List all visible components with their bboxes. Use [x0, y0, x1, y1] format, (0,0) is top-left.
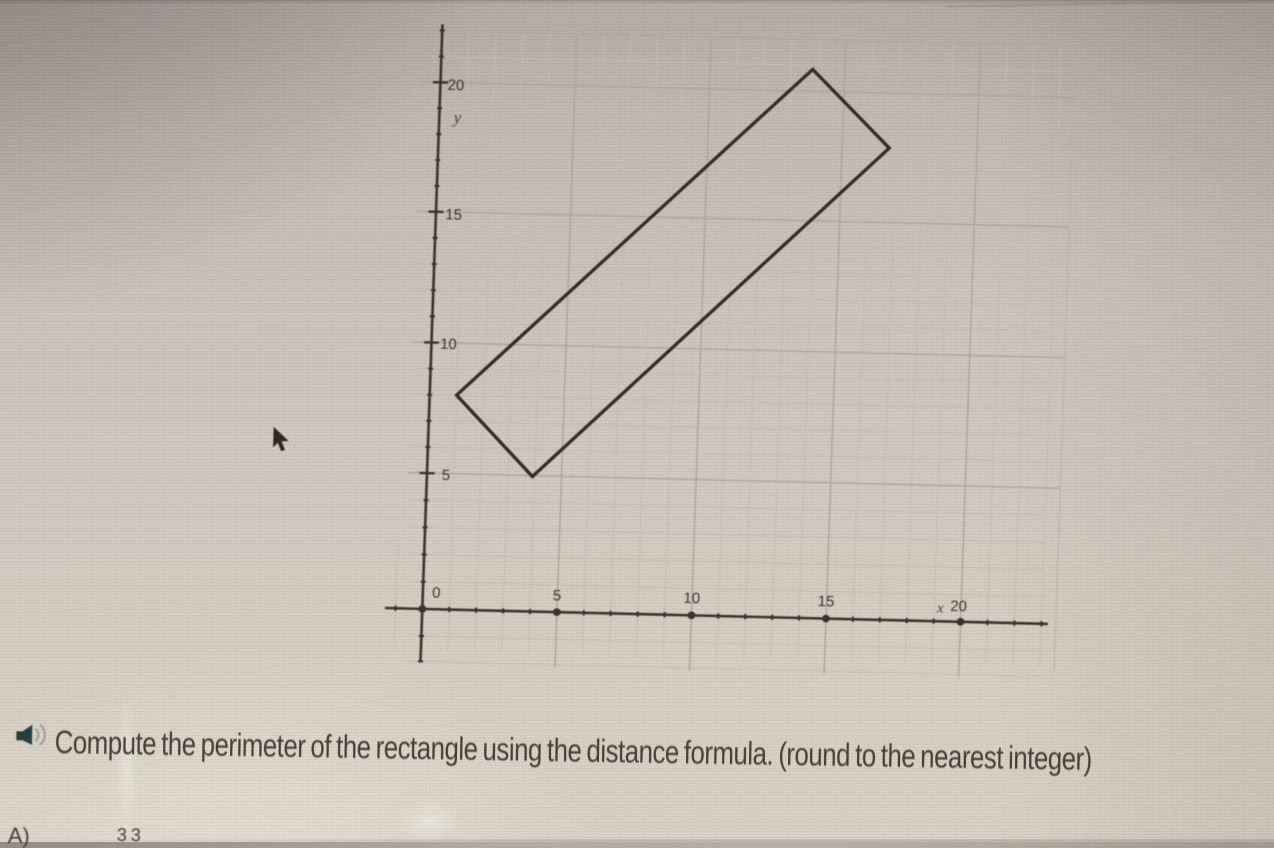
svg-text:x: x — [936, 601, 945, 617]
svg-text:15: 15 — [817, 593, 834, 610]
svg-text:0: 0 — [432, 585, 441, 602]
svg-text:10: 10 — [683, 590, 700, 607]
svg-text:y: y — [451, 108, 462, 127]
svg-text:20: 20 — [950, 598, 967, 615]
svg-text:5: 5 — [442, 467, 451, 484]
svg-text:15: 15 — [445, 206, 462, 223]
svg-text:5: 5 — [553, 587, 562, 604]
svg-text:10: 10 — [440, 336, 457, 353]
svg-text:20: 20 — [447, 77, 464, 94]
